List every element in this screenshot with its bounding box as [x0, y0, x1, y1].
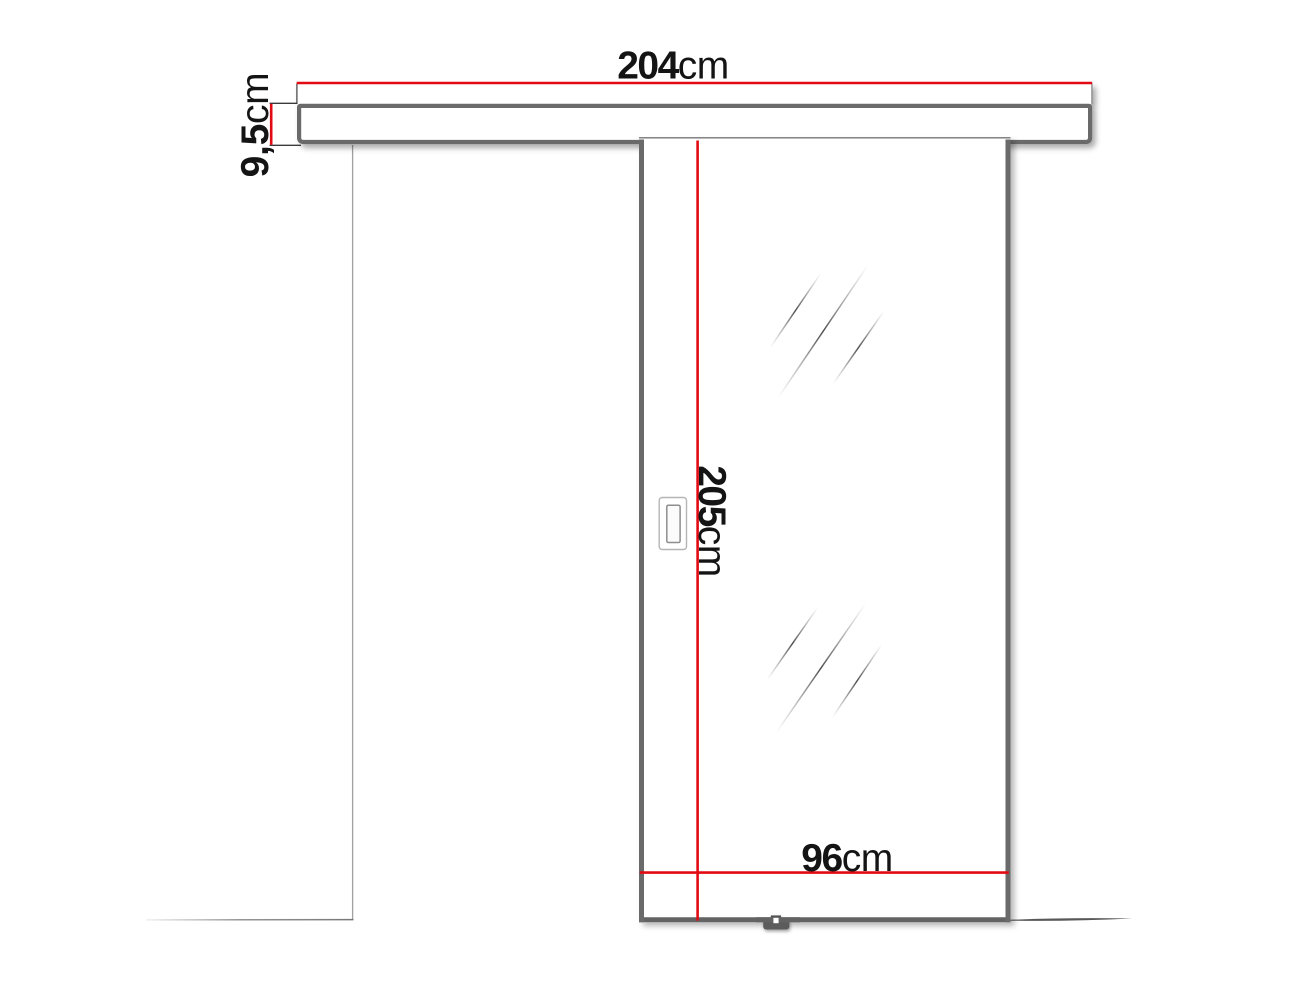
svg-text:96cm: 96cm [801, 837, 892, 880]
svg-text:204cm: 204cm [617, 45, 729, 88]
svg-text:9,5cm: 9,5cm [234, 73, 277, 178]
svg-text:205cm: 205cm [690, 465, 733, 577]
